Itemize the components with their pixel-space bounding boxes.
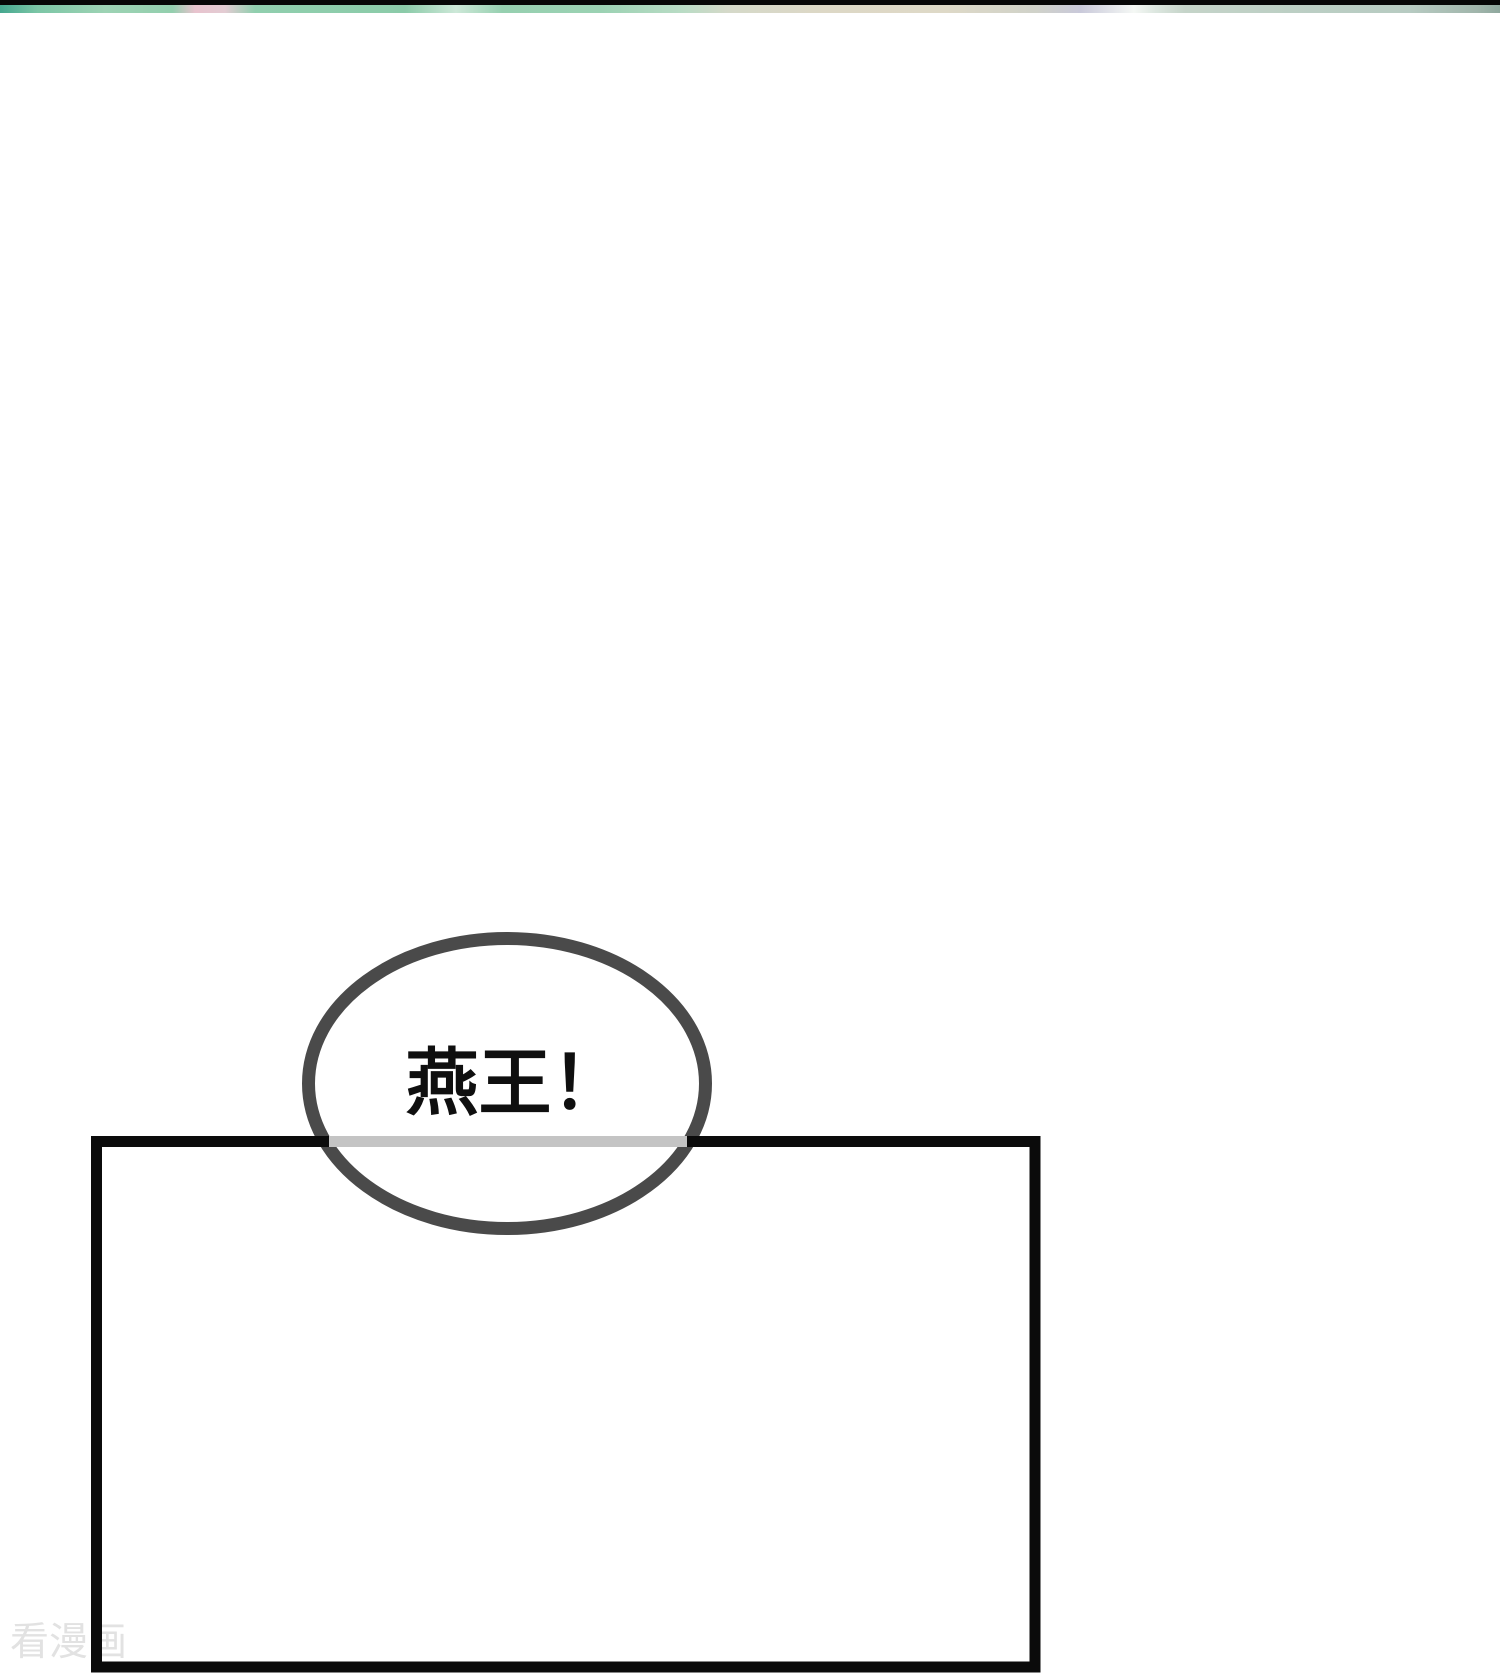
speech-bubble-text: 燕王！: [315, 1044, 715, 1124]
comic-page: 看漫画 燕王！: [0, 0, 1500, 1673]
panel-drawing: [0, 0, 1500, 1673]
